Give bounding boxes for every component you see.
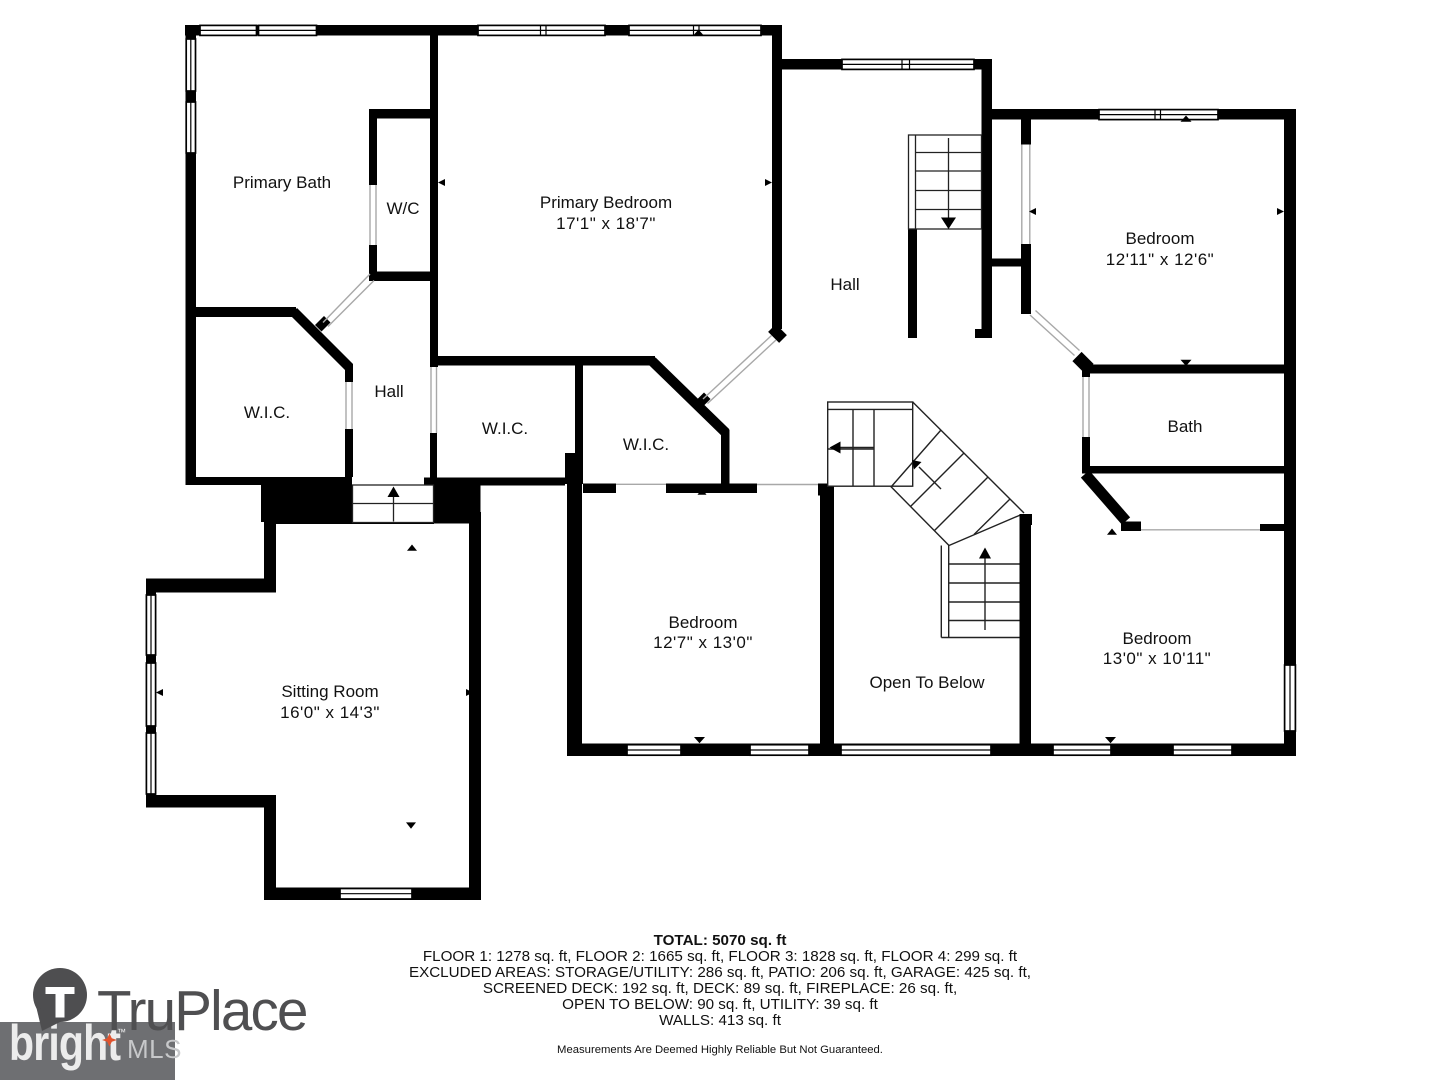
svg-text:W.I.C.: W.I.C.	[244, 403, 290, 422]
svg-text:OPEN TO BELOW: 90 sq. ft, UTIL: OPEN TO BELOW: 90 sq. ft, UTILITY: 39 sq…	[562, 996, 878, 1013]
svg-text:Primary Bath: Primary Bath	[233, 173, 331, 192]
svg-text:EXCLUDED AREAS: STORAGE/UTILIT: EXCLUDED AREAS: STORAGE/UTILITY: 286 sq.…	[409, 964, 1031, 981]
svg-text:FLOOR 1: 1278 sq. ft, FLOOR 2:: FLOOR 1: 1278 sq. ft, FLOOR 2: 1665 sq. …	[423, 948, 1018, 965]
svg-text:Bedroom: Bedroom	[1123, 629, 1192, 648]
svg-text:TruPlace: TruPlace	[97, 979, 307, 1042]
svg-text:Bedroom: Bedroom	[669, 613, 738, 632]
svg-text:Hall: Hall	[374, 382, 403, 401]
svg-text:WALLS: 413 sq. ft: WALLS: 413 sq. ft	[659, 1012, 782, 1029]
svg-text:Open To Below: Open To Below	[870, 673, 986, 692]
svg-text:16'0" x 14'3": 16'0" x 14'3"	[280, 703, 380, 722]
svg-text:Primary Bedroom: Primary Bedroom	[540, 193, 672, 212]
svg-text:Sitting Room: Sitting Room	[281, 682, 378, 701]
svg-text:W.I.C.: W.I.C.	[623, 435, 669, 454]
svg-text:TOTAL: 5070 sq. ft: TOTAL: 5070 sq. ft	[654, 932, 787, 949]
svg-text:13'0" x 10'11": 13'0" x 10'11"	[1103, 649, 1211, 668]
svg-text:Hall: Hall	[830, 275, 859, 294]
svg-text:W.I.C.: W.I.C.	[482, 419, 528, 438]
svg-text:Bedroom: Bedroom	[1126, 229, 1195, 248]
svg-text:Bath: Bath	[1168, 417, 1203, 436]
svg-text:12'11" x 12'6": 12'11" x 12'6"	[1106, 250, 1214, 269]
svg-text:W/C: W/C	[386, 199, 419, 218]
svg-text:Measurements Are Deemed Highly: Measurements Are Deemed Highly Reliable …	[557, 1044, 883, 1056]
svg-text:17'1" x 18'7": 17'1" x 18'7"	[556, 214, 656, 233]
svg-text:SCREENED DECK: 192 sq. ft, DEC: SCREENED DECK: 192 sq. ft, DECK: 89 sq. …	[483, 980, 957, 997]
svg-text:12'7" x 13'0": 12'7" x 13'0"	[653, 633, 753, 652]
